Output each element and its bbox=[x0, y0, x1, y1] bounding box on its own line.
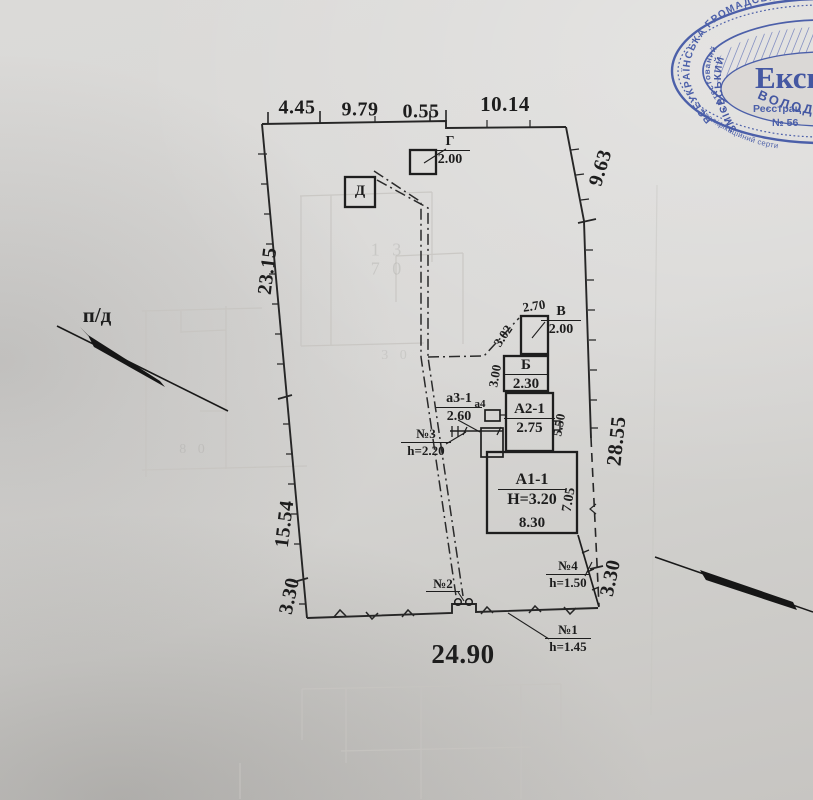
fence-n4-no: №4 bbox=[546, 559, 590, 575]
dimension-top-3: 0.55 bbox=[403, 102, 440, 123]
bleed-digits-2: 7 0 bbox=[371, 259, 406, 280]
building-a21-h: 2.75 bbox=[504, 419, 555, 437]
fence-n3-label: №3 h=2.20 bbox=[401, 427, 451, 458]
building-d-lit: Д bbox=[355, 184, 365, 200]
building-a21-lit: А2-1 bbox=[504, 401, 555, 419]
fence-n1-label: №1 h=1.45 bbox=[545, 623, 591, 654]
building-v-label: В 2.00 bbox=[541, 304, 581, 337]
building-v-h: 2.00 bbox=[541, 321, 581, 338]
building-v-lit: В bbox=[541, 304, 581, 321]
fence-n3-no: №3 bbox=[401, 427, 451, 443]
dimension-top-4: 10.14 bbox=[480, 93, 530, 115]
fence-n4-label: №4 h=1.50 bbox=[546, 559, 590, 590]
fence-n4-h: h=1.50 bbox=[546, 575, 590, 591]
bleed-digits-4: 8 0 bbox=[179, 442, 209, 458]
dimension-top-2: 9.79 bbox=[342, 100, 379, 121]
dimension-top-1: 4.45 bbox=[279, 98, 316, 119]
fence-n1-h: h=1.45 bbox=[545, 639, 591, 655]
dimension-bottom: 24.90 bbox=[431, 640, 494, 668]
building-b-h: 2.30 bbox=[504, 375, 548, 393]
building-a11-h: Н=3.20 bbox=[498, 490, 566, 509]
building-a21-label: А2-1 2.75 bbox=[504, 401, 555, 437]
building-a11-lit: А1-1 bbox=[498, 471, 566, 490]
size-a11-width: 8.30 bbox=[519, 516, 545, 532]
direction-label: п/д bbox=[83, 304, 112, 326]
fence-n2-no: №2 bbox=[426, 577, 460, 592]
building-b-label: Б 2.30 bbox=[504, 357, 548, 393]
building-g-label: Г 2.00 bbox=[430, 134, 470, 167]
bleed-digits-1: 1 3 bbox=[371, 240, 406, 261]
dimension-right-2: 28.55 bbox=[602, 415, 629, 467]
building-b-lit: Б bbox=[504, 357, 548, 375]
building-g-lit: Г bbox=[430, 134, 470, 151]
bleed-digits-3: 3 0 bbox=[381, 348, 411, 364]
fence-n1-no: №1 bbox=[545, 623, 591, 639]
building-a4-lit: а4 bbox=[475, 399, 486, 411]
building-g-h: 2.00 bbox=[430, 151, 470, 168]
building-a11-label: А1-1 Н=3.20 bbox=[498, 471, 566, 509]
stamp-reg-number: № 56 bbox=[772, 117, 798, 129]
scanned-page: Експ Реєстрац № 56 ВСЕУКРАЇНСЬКА ГРОМАДС… bbox=[0, 0, 813, 800]
fence-n3-h: h=2.20 bbox=[401, 443, 451, 459]
